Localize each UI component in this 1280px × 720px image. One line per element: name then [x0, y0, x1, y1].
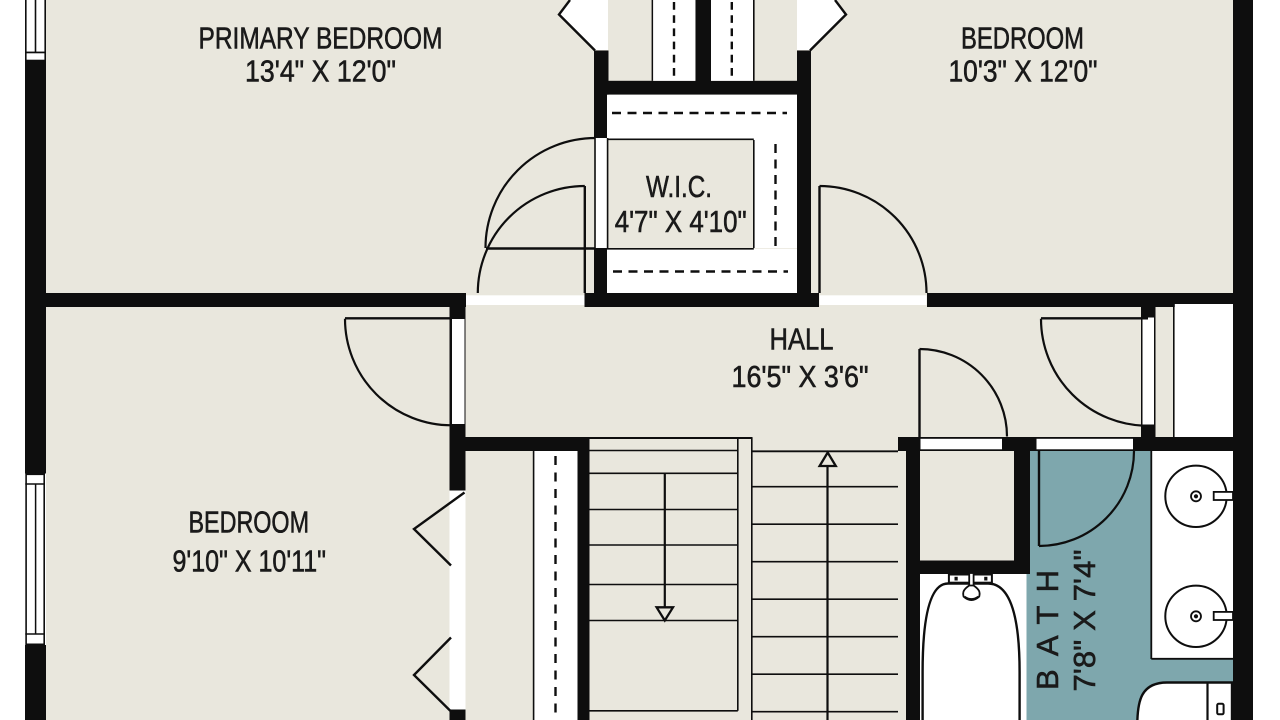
- svg-text:7'8" X 7'4": 7'8" X 7'4": [1067, 550, 1102, 692]
- svg-text:W.I.C.: W.I.C.: [646, 169, 712, 204]
- svg-text:10'3" X 12'0": 10'3" X 12'0": [949, 54, 1098, 89]
- svg-text:4'7" X 4'10": 4'7" X 4'10": [615, 204, 747, 239]
- svg-text:16'5" X 3'6": 16'5" X 3'6": [732, 359, 869, 394]
- svg-text:9'10" X 10'11": 9'10" X 10'11": [173, 544, 327, 579]
- svg-text:HALL: HALL: [770, 322, 834, 357]
- svg-text:13'4" X 12'0": 13'4" X 12'0": [245, 54, 396, 89]
- svg-text:PRIMARY BEDROOM: PRIMARY BEDROOM: [199, 21, 443, 56]
- svg-text:BEDROOM: BEDROOM: [189, 505, 310, 540]
- svg-text:BEDROOM: BEDROOM: [961, 21, 1084, 56]
